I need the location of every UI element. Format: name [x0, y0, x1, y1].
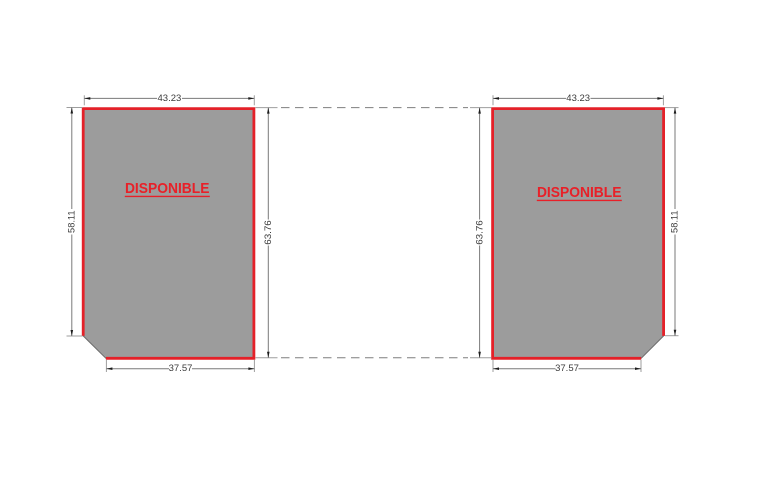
- svg-text:37.57: 37.57: [555, 363, 579, 373]
- svg-text:58.11: 58.11: [670, 210, 680, 233]
- svg-text:43.23: 43.23: [158, 93, 182, 103]
- svg-text:63.76: 63.76: [474, 220, 484, 245]
- svg-text:43.23: 43.23: [566, 93, 590, 103]
- svg-text:58.11: 58.11: [67, 210, 77, 233]
- svg-text:37.57: 37.57: [169, 363, 193, 373]
- svg-text:DISPONIBLE: DISPONIBLE: [125, 180, 210, 197]
- svg-text:63.76: 63.76: [263, 220, 273, 245]
- svg-text:DISPONIBLE: DISPONIBLE: [537, 184, 622, 201]
